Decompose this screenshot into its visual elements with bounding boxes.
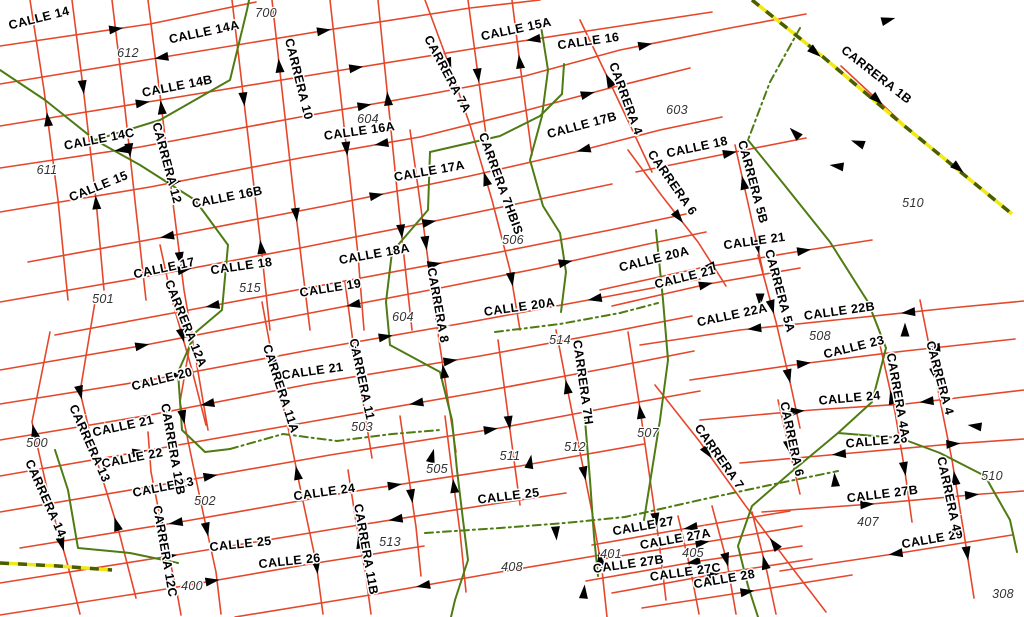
zone-label: 514 bbox=[549, 333, 571, 347]
zone-label: 511 bbox=[500, 449, 521, 463]
zone-label: 501 bbox=[92, 292, 114, 306]
zone-label: 510 bbox=[902, 196, 924, 210]
zone-label: 512 bbox=[564, 440, 586, 454]
zone-label: 407 bbox=[857, 515, 880, 529]
zone-label: 502 bbox=[194, 494, 216, 508]
zone-label: 700 bbox=[255, 6, 277, 20]
zone-label: 500 bbox=[26, 436, 48, 450]
zone-label: 505 bbox=[426, 462, 448, 476]
zone-label: 408 bbox=[501, 560, 523, 574]
zone-label: 611 bbox=[37, 163, 58, 177]
zone-label: 401 bbox=[600, 547, 622, 561]
zone-label: 515 bbox=[239, 281, 261, 295]
zone-label: 604 bbox=[392, 310, 414, 324]
zone-label: 405 bbox=[682, 546, 704, 560]
zone-label: 503 bbox=[351, 420, 373, 434]
zone-label: 507 bbox=[637, 426, 660, 440]
zone-label: 603 bbox=[666, 103, 688, 117]
zone-label: 513 bbox=[379, 535, 401, 549]
zone-label: 308 bbox=[992, 587, 1014, 601]
zone-label: 510 bbox=[981, 469, 1003, 483]
zone-label: 400 bbox=[181, 579, 203, 593]
street-map: CALLE 14CALLE 14ACALLE 14BCALLE 14CCALLE… bbox=[0, 0, 1024, 617]
zone-label: 604 bbox=[357, 112, 379, 126]
zone-label: 508 bbox=[809, 329, 831, 343]
zone-label: 506 bbox=[502, 233, 524, 247]
zone-label: 612 bbox=[117, 46, 139, 60]
street-map-canvas: CALLE 14CALLE 14ACALLE 14BCALLE 14CCALLE… bbox=[0, 0, 1024, 617]
